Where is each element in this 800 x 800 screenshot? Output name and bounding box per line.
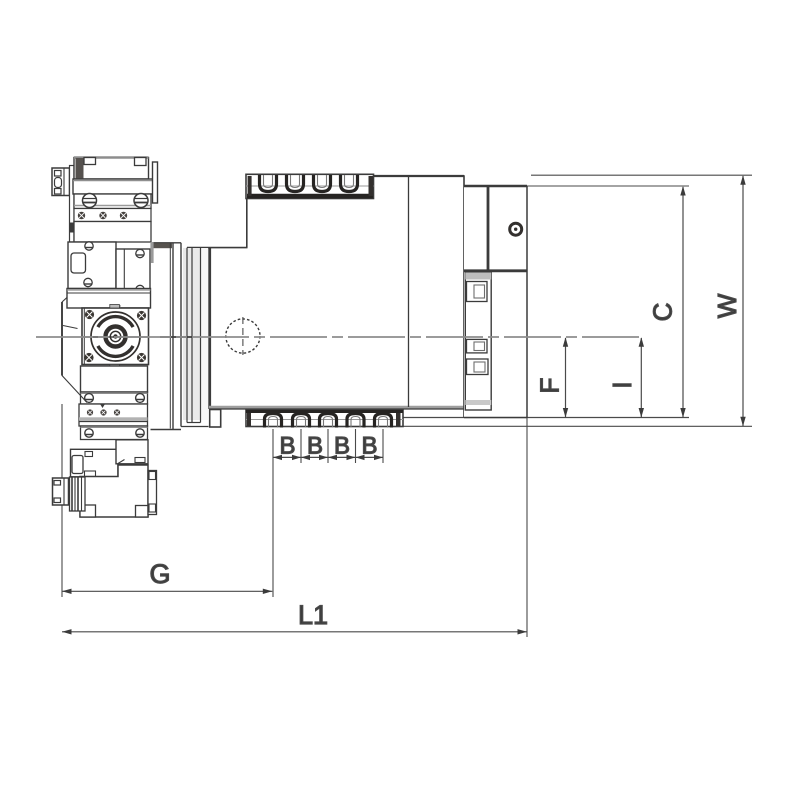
svg-text:B: B <box>279 433 295 460</box>
svg-text:B: B <box>334 433 350 460</box>
svg-text:L1: L1 <box>298 600 328 630</box>
svg-text:F: F <box>535 378 565 394</box>
svg-text:G: G <box>149 559 170 589</box>
svg-text:I: I <box>607 381 637 388</box>
svg-text:C: C <box>648 303 678 322</box>
svg-text:B: B <box>307 433 323 460</box>
svg-text:W: W <box>712 293 742 318</box>
svg-text:B: B <box>361 433 377 460</box>
